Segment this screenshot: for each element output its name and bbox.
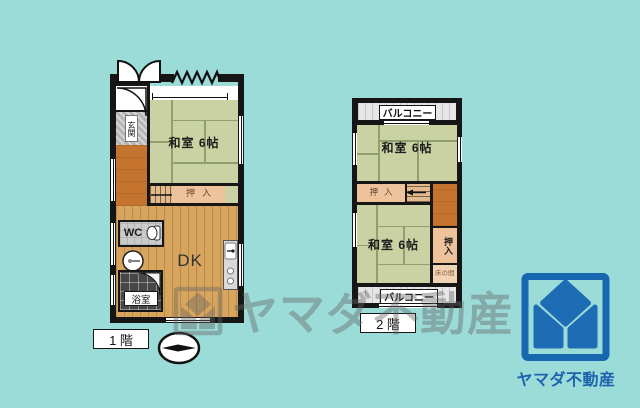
stair-landing-2f xyxy=(433,184,458,227)
hallway-floor xyxy=(116,145,147,206)
brand-name: ヤマダ不動産 xyxy=(516,366,616,390)
window xyxy=(458,136,462,163)
genkan-label: 玄関 xyxy=(125,115,138,142)
brand-logo-icon xyxy=(520,273,612,361)
window xyxy=(111,222,116,266)
floorplan-image: 和室 6帖 押入 DK WC 浴室 玄関 1 階 xyxy=(0,0,640,408)
oshiire-1f-label: 押入 xyxy=(172,189,225,199)
balcony-bottom-label: バルコニー xyxy=(380,289,438,304)
oshiire-2f-right-label: 押入 xyxy=(438,232,452,260)
window xyxy=(378,304,438,308)
window xyxy=(383,121,430,125)
toilet-icon xyxy=(146,224,162,243)
bath-label: 浴室 xyxy=(124,291,158,306)
window xyxy=(239,243,244,287)
window xyxy=(152,93,228,100)
window xyxy=(239,115,244,165)
washitsu-2f-lower-label: 和室 6帖 xyxy=(357,239,430,252)
tokonoma-label: 床の間 xyxy=(433,270,458,277)
entrance-double-door-icon xyxy=(114,58,164,84)
window xyxy=(111,158,116,202)
floor1-label: 1 階 xyxy=(93,329,149,349)
kitchen-sink-icon xyxy=(223,241,238,289)
oshiire-2f-mid-label: 押入 xyxy=(357,188,405,197)
tatami-sliver xyxy=(225,186,238,204)
stairs-arrow-icon xyxy=(404,186,430,199)
washitsu-2f-upper-label: 和室 6帖 xyxy=(357,142,457,155)
zigzag-boundary xyxy=(170,68,222,86)
window xyxy=(111,274,116,306)
floor2-label: 2 階 xyxy=(360,313,416,333)
balcony-top-label: バルコニー xyxy=(379,105,436,120)
dk-label: DK xyxy=(160,252,220,271)
compass-icon xyxy=(157,331,201,365)
window xyxy=(165,318,211,323)
washitsu-1f-label: 和室 6帖 xyxy=(150,137,238,150)
genkan-door-arc xyxy=(115,86,149,116)
wc-label: WC xyxy=(120,227,146,239)
